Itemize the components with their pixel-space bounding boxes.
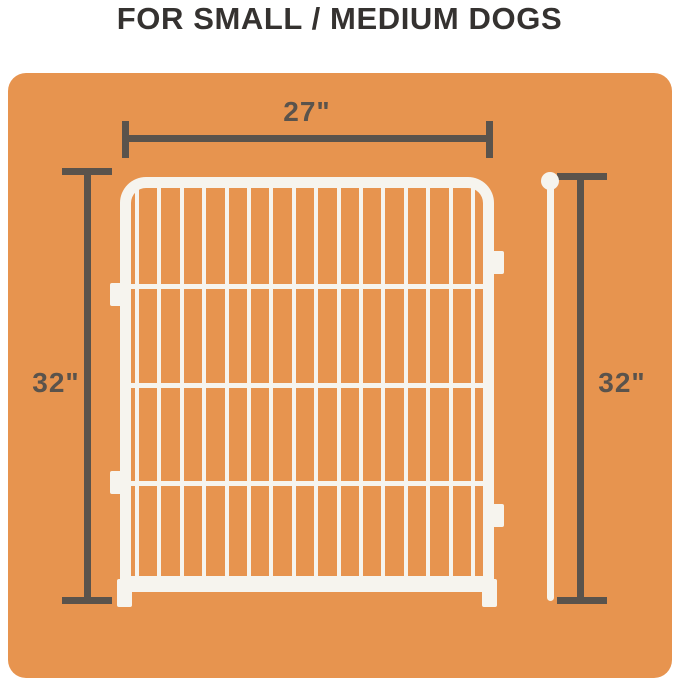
fence-connector-clip: [492, 251, 504, 274]
product-dimension-graphic: FOR SMALL / MEDIUM DOGS 27" 32" 32": [0, 0, 679, 682]
pole-ball-top: [541, 172, 559, 190]
fence-foot-right: [482, 579, 497, 607]
dimension-line-horizontal: [125, 135, 489, 142]
height-dimension-label-right: 32": [592, 367, 652, 399]
fence-connector-clip: [110, 283, 122, 306]
dimension-end-cap-bottom: [62, 597, 112, 604]
dimension-line-vertical: [577, 176, 584, 601]
height-dimension-label-left: 32": [26, 367, 86, 399]
fence-frame: [120, 177, 494, 587]
fence-foot-left: [117, 579, 132, 607]
fence-connector-clip: [492, 504, 504, 527]
width-dimension-label: 27": [125, 96, 489, 128]
pole-rod: [547, 181, 554, 601]
fence-connector-clip: [110, 471, 122, 494]
page-title: FOR SMALL / MEDIUM DOGS: [0, 1, 679, 37]
dimension-end-cap-bottom: [557, 597, 607, 604]
fence-bottom-rail: [117, 579, 497, 592]
